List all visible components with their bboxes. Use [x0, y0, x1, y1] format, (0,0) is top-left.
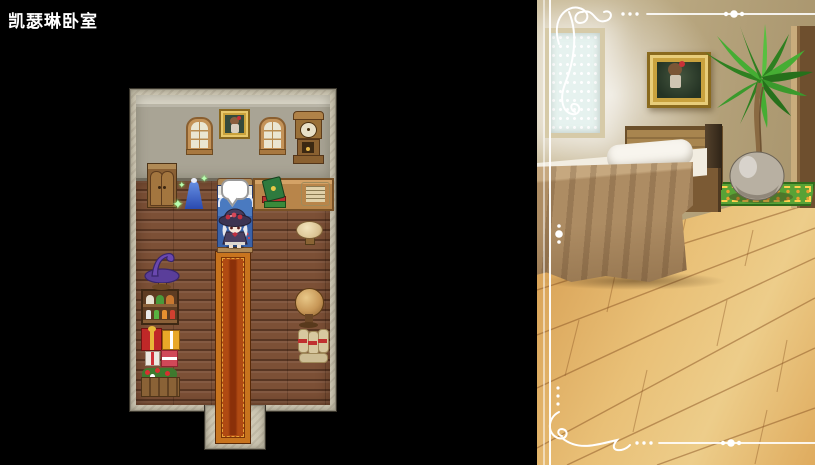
- sparkle-icon: ✦: [172, 197, 184, 211]
- page-title: 凯瑟琳卧室: [8, 7, 98, 32]
- stool: [296, 220, 322, 246]
- sparkle-icon: ✦: [200, 175, 208, 185]
- game-screen: 凯瑟琳卧室 ✦ ✦ ✦: [0, 0, 815, 465]
- witch-hat-on-stand: [143, 251, 181, 291]
- desk-with-books: [253, 178, 334, 211]
- gift-boxes: [141, 326, 181, 369]
- grandfather-clock: [293, 111, 324, 164]
- ornamental-border: [537, 0, 815, 465]
- open-scroll: [301, 182, 330, 206]
- speech-bubble[interactable]: [221, 179, 249, 200]
- figurine-shelf: [141, 289, 179, 325]
- sparkle-icon: ✦: [178, 181, 186, 190]
- arched-window-right: [259, 117, 286, 155]
- bedroom-artwork: [537, 0, 815, 465]
- globe: [291, 287, 326, 331]
- red-carpet: [216, 252, 250, 443]
- room-map[interactable]: ✦ ✦ ✦: [130, 89, 336, 449]
- framed-portrait-map: [219, 109, 250, 139]
- arched-window-left: [186, 117, 213, 155]
- scroll-bundles: [297, 329, 329, 363]
- green-book: [262, 176, 286, 202]
- flower-planter: [141, 367, 179, 396]
- witch-hat-character[interactable]: [218, 207, 252, 249]
